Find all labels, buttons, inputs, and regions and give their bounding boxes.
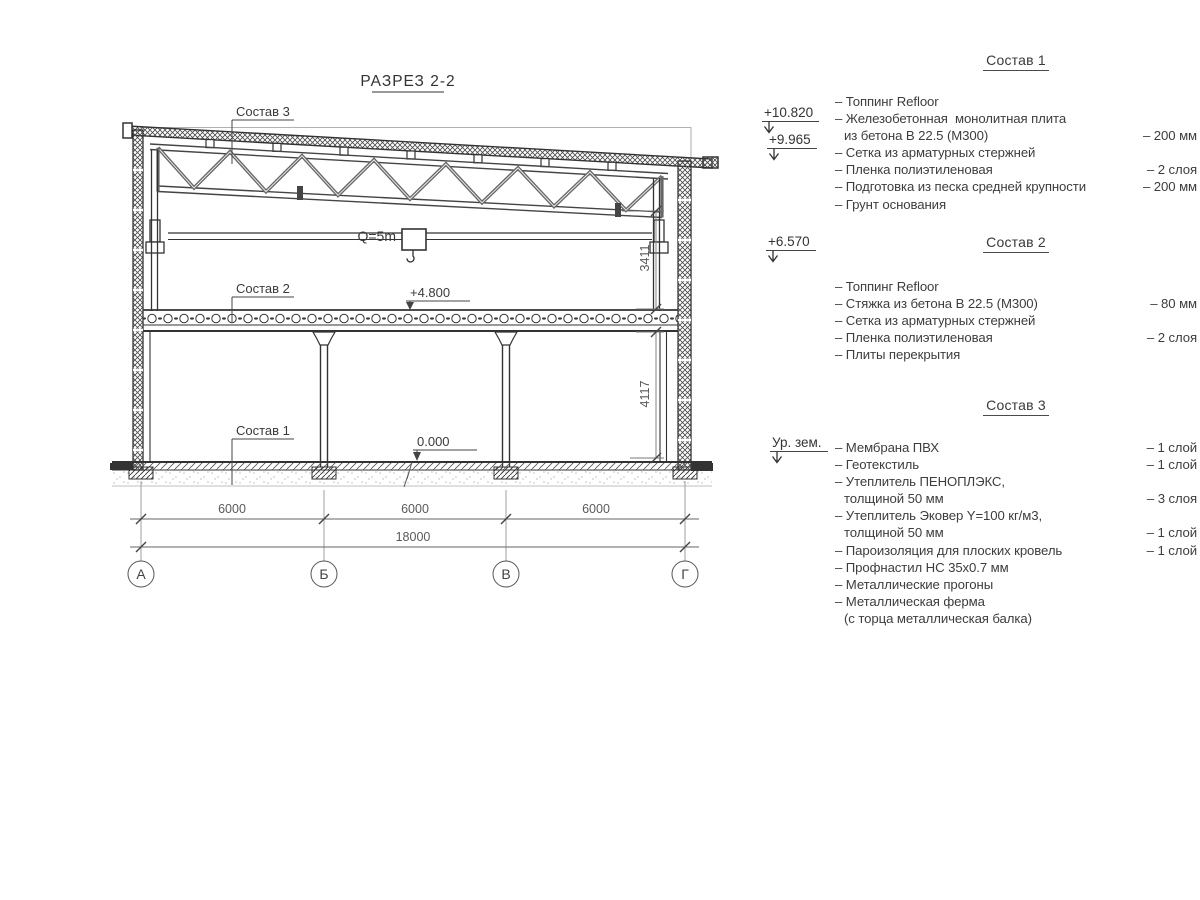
svg-text:+4.800: +4.800	[410, 285, 450, 300]
crane-capacity-label: Q=5m	[357, 228, 396, 244]
list-row: – Пленка полиэтиленовая– 2 слоя	[835, 162, 1197, 179]
list-title: Состав 1	[983, 52, 1049, 71]
roof-slab	[128, 126, 712, 168]
elevation-label: +10.820	[762, 105, 819, 122]
elev-0000: 0.000	[413, 434, 477, 461]
list-title: Состав 3	[983, 397, 1049, 416]
row-text: – Сетка из арматурных стержней	[835, 145, 1035, 160]
row-text: из бетона В 22.5 (М300)	[835, 128, 988, 143]
axis-g: Г	[681, 566, 689, 582]
row-text: – Стяжка из бетона В 22.5 (М300)	[835, 296, 1038, 311]
list-row: – Мембрана ПВХ– 1 слой	[835, 440, 1197, 457]
row-text: – Железобетонная монолитная плита	[835, 111, 1066, 126]
list-row: – Плиты перекрытия	[835, 347, 1197, 364]
row-text: – Топпинг Refloor	[835, 279, 939, 294]
list-row: – Подготовка из песка средней крупности–…	[835, 179, 1197, 196]
row-text: – Мембрана ПВХ	[835, 440, 939, 455]
list-row: – Грунт основания	[835, 197, 1197, 214]
crane-trolley	[402, 229, 426, 250]
row-text: – Профнастил НС 35х0.7 мм	[835, 560, 1009, 575]
row-text: – Топпинг Refloor	[835, 94, 939, 109]
list-row: – Сетка из арматурных стержней	[835, 313, 1197, 330]
row-value: – 3 слоя	[1147, 491, 1197, 506]
list-row: толщиной 50 мм– 3 слоя	[835, 491, 1197, 508]
row-text: – Геотекстиль	[835, 457, 919, 472]
left-wall	[133, 130, 143, 470]
row-text: – Утеплитель Эковер Y=100 кг/м3,	[835, 508, 1042, 523]
list-row: – Пароизоляция для плоских кровель– 1 сл…	[835, 543, 1197, 560]
floor-slab	[143, 310, 678, 331]
elevation-label: +6.570	[766, 234, 816, 251]
axis-bubbles: А Б В Г	[128, 561, 698, 587]
list-row: – Сетка из арматурных стержней	[835, 145, 1197, 162]
axis-v: В	[501, 566, 510, 582]
list-rows: – Топпинг Refloor– Стяжка из бетона В 22…	[835, 279, 1197, 364]
level-arrow-icon	[767, 251, 781, 264]
drawing-sheet: РАЗРЕЗ 2-2	[0, 0, 1200, 900]
elevation-mark-9965: +9.965	[767, 131, 817, 162]
dim-span-1: 6000	[218, 502, 246, 516]
row-value: – 80 мм	[1150, 296, 1197, 311]
row-text: – Плиты перекрытия	[835, 347, 960, 362]
row-text: – Пленка полиэтиленовая	[835, 330, 993, 345]
row-text: – Сетка из арматурных стержней	[835, 313, 1035, 328]
list-row: – Пленка полиэтиленовая– 2 слоя	[835, 330, 1197, 347]
svg-text:0.000: 0.000	[417, 434, 450, 449]
list-rows: – Топпинг Refloor– Железобетонная моноли…	[835, 94, 1197, 214]
list-row: – Утеплитель ПЕНОПЛЭКС,	[835, 474, 1197, 491]
section-drawing: РАЗРЕЗ 2-2	[0, 0, 760, 660]
row-text: – Металлические прогоны	[835, 577, 993, 592]
crane-hook-icon	[407, 250, 414, 262]
elevation-mark-6570: +6.570	[766, 233, 816, 264]
row-text: толщиной 50 мм	[835, 491, 944, 506]
dim-span-2: 6000	[401, 502, 429, 516]
elev-4800: +4.800	[406, 285, 470, 310]
dim-total: 18000	[396, 530, 431, 544]
row-value: – 1 слой	[1147, 543, 1197, 558]
elevation-label: Ур. зем.	[770, 435, 828, 452]
row-value: – 1 слой	[1147, 525, 1197, 540]
callout-sostav3: Состав 3	[236, 104, 290, 119]
row-value: – 1 слой	[1147, 440, 1197, 455]
axis-b: Б	[319, 566, 328, 582]
list-row: (с торца металлическая балка)	[835, 611, 1197, 628]
elevation-label: +9.965	[767, 132, 817, 149]
composition-list-3: Состав 3 – Мембрана ПВХ– 1 слой– Геотекс…	[835, 397, 1197, 628]
row-text: (с торца металлическая балка)	[835, 611, 1032, 626]
list-row: – Профнастил НС 35х0.7 мм	[835, 560, 1197, 577]
list-row: – Топпинг Refloor	[835, 94, 1197, 111]
row-text: – Утеплитель ПЕНОПЛЭКС,	[835, 474, 1005, 489]
columns-lower	[150, 332, 667, 467]
row-text: – Подготовка из песка средней крупности	[835, 179, 1086, 194]
list-row: – Утеплитель Эковер Y=100 кг/м3,	[835, 508, 1197, 525]
list-rows: – Мембрана ПВХ– 1 слой– Геотекстиль– 1 с…	[835, 440, 1197, 628]
row-value: – 200 мм	[1143, 128, 1197, 143]
callout-sostav1: Состав 1	[236, 423, 290, 438]
composition-list-2: Состав 2 – Топпинг Refloor– Стяжка из бе…	[835, 234, 1197, 364]
level-arrow-icon	[771, 452, 785, 465]
dim-span-3: 6000	[582, 502, 610, 516]
row-value: – 200 мм	[1143, 179, 1197, 194]
row-text: толщиной 50 мм	[835, 525, 944, 540]
composition-list-1: Состав 1 – Топпинг Refloor– Железобетонн…	[835, 52, 1197, 214]
row-text: – Пароизоляция для плоских кровель	[835, 543, 1062, 558]
row-text: – Грунт основания	[835, 197, 946, 212]
dim-v-upper: 3411	[638, 245, 652, 272]
row-value: – 2 слоя	[1147, 330, 1197, 345]
elevation-mark-ground-level: Ур. зем.	[770, 434, 828, 465]
ground-slab	[110, 462, 713, 487]
level-arrow-icon	[768, 149, 782, 162]
right-wall	[678, 161, 691, 470]
drawing-title: РАЗРЕЗ 2-2	[360, 73, 455, 90]
row-value: – 1 слой	[1147, 457, 1197, 472]
list-row: толщиной 50 мм– 1 слой	[835, 525, 1197, 542]
list-row: – Металлическая ферма	[835, 594, 1197, 611]
list-row: – Геотекстиль– 1 слой	[835, 457, 1197, 474]
dim-v-lower: 4117	[638, 381, 652, 408]
callout-sostav2: Состав 2	[236, 281, 290, 296]
dim-horizontal: 6000 6000 6000 18000	[130, 481, 699, 561]
list-row: – Железобетонная монолитная плита	[835, 111, 1197, 128]
row-text: – Пленка полиэтиленовая	[835, 162, 993, 177]
axis-a: А	[136, 566, 146, 582]
row-text: – Металлическая ферма	[835, 594, 985, 609]
list-title: Состав 2	[983, 234, 1049, 253]
list-row: – Стяжка из бетона В 22.5 (М300)– 80 мм	[835, 296, 1197, 313]
list-row: из бетона В 22.5 (М300)– 200 мм	[835, 128, 1197, 145]
list-row: – Металлические прогоны	[835, 577, 1197, 594]
list-row: – Топпинг Refloor	[835, 279, 1197, 296]
row-value: – 2 слоя	[1147, 162, 1197, 177]
